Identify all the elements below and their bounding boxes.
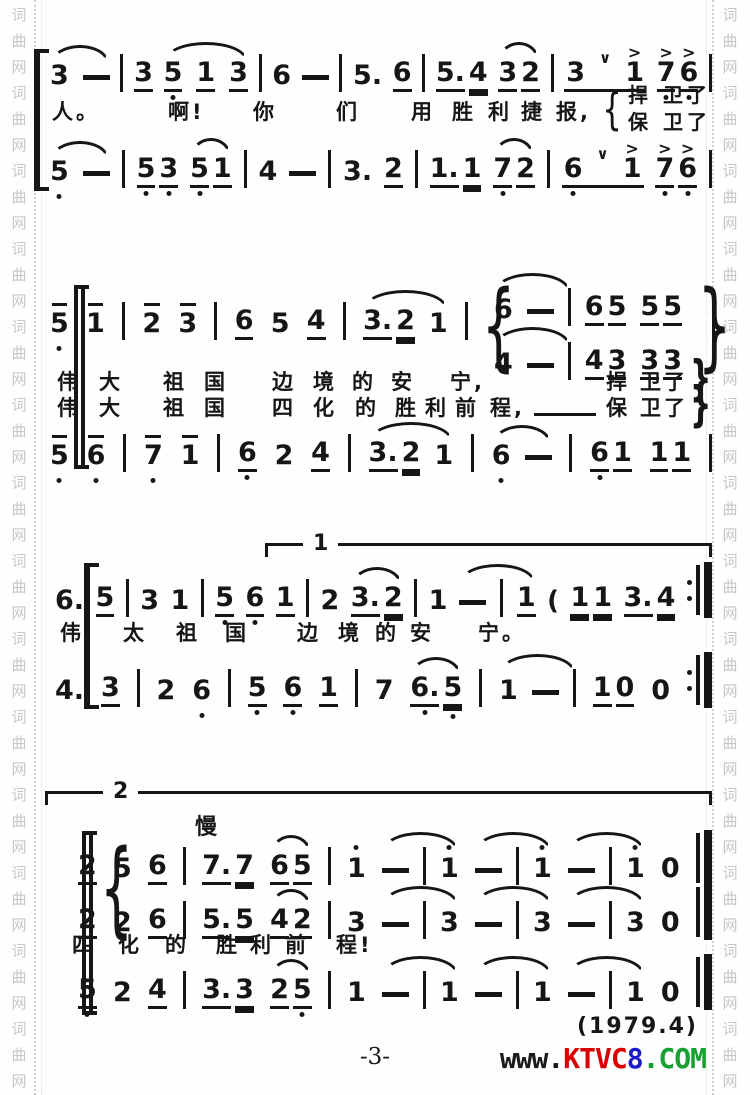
watermark-char: 网: [11, 366, 26, 392]
lyric-text: 程,: [490, 392, 525, 422]
notes-line-voice1: 6.53156123.211(113.4: [55, 571, 712, 617]
watermark-char: 曲: [722, 574, 737, 600]
watermark-char: 网: [722, 834, 737, 860]
watermark-char: 词: [11, 314, 26, 340]
barline: [126, 579, 129, 617]
lyric-text: 程!: [336, 929, 373, 959]
watermark-char: 曲: [11, 106, 26, 132]
watermark-char: 词: [11, 236, 26, 262]
notes-line-voice2: 5535143.21.1726∨1>7>6>: [50, 142, 712, 188]
beamed-group: 6∨1>: [562, 153, 644, 188]
note: 5: [96, 582, 115, 617]
lyric-text: 利: [488, 96, 512, 126]
note: 5: [78, 974, 97, 1009]
note: 2: [275, 440, 294, 472]
barline: [137, 669, 140, 707]
note: 6: [246, 582, 265, 617]
lyric-text: 的: [375, 617, 399, 647]
note: 1: [672, 437, 691, 472]
note: 6.: [410, 672, 439, 707]
watermark-char: 词: [11, 2, 26, 28]
watermark-char: 曲: [722, 106, 737, 132]
note: 3: [50, 60, 69, 92]
watermark-char: 网: [11, 522, 26, 548]
barline: [214, 302, 217, 340]
lyric-text: 的: [165, 929, 189, 959]
slur-group: 32: [498, 57, 540, 92]
note: 2: [270, 974, 289, 1009]
note: 2: [78, 850, 97, 885]
slur-group: 25: [270, 974, 312, 1009]
slur-group: 3.21: [363, 305, 448, 340]
low-octave-dot: [166, 191, 171, 196]
note: 3: [159, 153, 178, 188]
note: 4: [311, 437, 330, 472]
volta-bracket-1: 1: [265, 543, 712, 560]
note-group: 3.4: [624, 582, 676, 617]
note: 4: [259, 156, 278, 188]
watermark-char: 曲: [722, 730, 737, 756]
note: 2: [521, 57, 540, 92]
note: 1: [347, 977, 366, 1009]
low-octave-dot: [290, 710, 295, 715]
watermark-char: 词: [722, 1016, 737, 1042]
barline: [122, 302, 125, 340]
low-octave-dot: [245, 475, 250, 480]
note: 3: [134, 57, 153, 92]
notes-line-voice2: 56716243.2166111: [50, 426, 712, 472]
note: 1: [319, 672, 338, 707]
note: 5: [293, 974, 312, 1009]
watermark-char: 词: [11, 548, 26, 574]
lyric-text: 们: [336, 96, 360, 126]
barline: [568, 288, 571, 326]
barline: [355, 669, 358, 707]
note: 5: [113, 853, 132, 885]
watermark-char: 网: [11, 132, 26, 158]
note-group: 3.2: [363, 305, 415, 340]
lyric-text: 卫了: [640, 392, 688, 422]
dash-continuation: [475, 868, 502, 873]
note: 2: [516, 153, 535, 188]
note: 3: [229, 57, 248, 92]
watermark-char: 网: [722, 756, 737, 782]
composition-date: (1979.4): [577, 1014, 698, 1039]
note: 1: [593, 582, 612, 617]
low-octave-dot: [500, 191, 505, 196]
note: 6: [585, 291, 604, 326]
barline: [201, 579, 204, 617]
note: 5: [271, 308, 290, 340]
barline: [471, 434, 474, 472]
slur-group: 1: [499, 669, 576, 707]
stack-rows: 捍 卫了保 卫了: [628, 82, 711, 136]
note: 2: [396, 305, 415, 340]
site-www: www.: [500, 1042, 563, 1075]
watermark-char: 网: [722, 444, 737, 470]
barline: [343, 302, 346, 340]
watermark-left-column: 词曲网词曲网词曲网词曲网词曲网词曲网词曲网词曲网词曲网词曲网词曲网词曲网词曲网词…: [4, 0, 36, 1095]
lyric-text: 保 卫了: [628, 109, 711, 136]
note: 0: [661, 853, 680, 885]
note: 6: [564, 153, 583, 185]
lyric-text: 边: [297, 617, 321, 647]
note: 2: [402, 437, 421, 472]
barline: [415, 150, 418, 188]
watermark-char: 曲: [11, 28, 26, 54]
watermark-char: 词: [11, 860, 26, 886]
accent-mark: >: [682, 37, 695, 69]
lyric-text: 祖: [163, 392, 187, 422]
note: 1: [434, 440, 453, 472]
lyric-text: 你: [253, 96, 277, 126]
dash-continuation: [382, 922, 409, 927]
note-group: 3.3: [202, 974, 254, 1009]
watermark-char: 曲: [722, 652, 737, 678]
watermark-char: 曲: [722, 184, 737, 210]
lyric-text: 境: [338, 617, 362, 647]
lyric-text: 太: [123, 617, 147, 647]
barline: [569, 434, 572, 472]
note: 5: [663, 291, 682, 326]
watermark-char: 曲: [11, 964, 26, 990]
slur-group: 72: [493, 153, 535, 188]
note: 3: [498, 57, 517, 92]
barline: [328, 971, 331, 1009]
note: 1: [86, 308, 105, 340]
note: 6: [238, 437, 257, 472]
slur-group: 65: [270, 850, 312, 885]
watermark-char: 曲: [11, 184, 26, 210]
barline: [244, 150, 247, 188]
barline: [259, 54, 262, 92]
watermark-char: 词: [722, 470, 737, 496]
note: 6: [492, 440, 511, 472]
low-octave-dot: [597, 475, 602, 480]
note: 1: [440, 977, 459, 1009]
note: 1.: [430, 153, 459, 188]
note: 1: [276, 582, 295, 617]
note: 6: [148, 850, 167, 885]
note-group: 11: [650, 437, 692, 472]
repeat-dots: [687, 580, 692, 601]
repeat-end-barline: [687, 563, 712, 617]
watermark-right-column: 词曲网词曲网词曲网词曲网词曲网词曲网词曲网词曲网词曲网词曲网词曲网词曲网词曲网词…: [712, 0, 746, 1095]
lyrics-line: 人。啊!你们用胜利捷报,{捍 卫了保 卫了: [40, 96, 712, 124]
dash-continuation: [525, 455, 552, 460]
watermark-char: 曲: [722, 808, 737, 834]
watermark-char: 网: [11, 210, 26, 236]
note: 0: [651, 675, 670, 707]
barline: [414, 579, 417, 617]
note: 3.: [343, 156, 372, 188]
lyric-text: 国: [225, 617, 249, 647]
watermark-char: 词: [722, 704, 737, 730]
lyric-text: 四: [272, 392, 296, 422]
lyric-text: 伟: [60, 617, 84, 647]
watermark-char: 词: [722, 158, 737, 184]
accent-mark: >: [628, 37, 641, 69]
note: 5.: [353, 60, 382, 92]
lyric-stack: {捍 卫了保 卫了: [598, 82, 711, 136]
note-group: 65: [585, 291, 627, 326]
barline: [423, 847, 426, 885]
watermark-char: 网: [722, 210, 737, 236]
accent-mark: >: [681, 133, 694, 165]
low-octave-dot: [300, 1012, 305, 1017]
note: 6: [393, 57, 412, 92]
slur-group: 3.2: [351, 582, 403, 617]
lyric-text: 胜: [395, 392, 419, 422]
accent-mark: >: [625, 133, 638, 165]
low-octave-dot: [93, 478, 98, 483]
watermark-char: 网: [11, 990, 26, 1016]
note: 1: [570, 582, 589, 617]
note: 1: [533, 853, 552, 885]
barline: [123, 434, 126, 472]
note: 6: [494, 294, 513, 326]
note-group: 1.1: [430, 153, 482, 188]
barline: [709, 150, 712, 188]
lyric-text: 前: [285, 929, 309, 959]
note-group: 7>6>: [655, 153, 697, 188]
lyrics-line-verse1: 伟大祖国边境的安宁,捍卫了}: [40, 366, 712, 394]
watermark-char: 词: [722, 392, 737, 418]
dash-continuation: [532, 690, 559, 695]
note-group: 10: [593, 672, 635, 707]
note: 5: [50, 156, 69, 188]
note: 4: [148, 974, 167, 1009]
low-octave-dot: [57, 478, 62, 483]
barline: [573, 669, 576, 707]
note: 1: [181, 440, 200, 472]
note: 2: [113, 977, 132, 1009]
watermark-char: 网: [722, 600, 737, 626]
lyric-text: 胜: [216, 929, 240, 959]
note: 5: [293, 850, 312, 885]
watermark-char: 网: [11, 444, 26, 470]
note: 7: [375, 675, 394, 707]
note: 1: [593, 672, 612, 707]
watermark-char: 词: [722, 860, 737, 886]
note: 3: [140, 585, 159, 617]
note: 1: [429, 308, 448, 340]
slur-group: 1: [382, 847, 459, 885]
watermark-char: 曲: [11, 574, 26, 600]
lyrics-line: 伟太祖国边境的安宁。: [40, 617, 712, 645]
barline: [217, 434, 220, 472]
low-octave-dot: [685, 191, 690, 196]
note: 1: [517, 582, 536, 617]
note: 6: [192, 675, 211, 707]
watermark-char: 网: [722, 1068, 737, 1094]
watermark-char: 词: [11, 158, 26, 184]
barline: [328, 150, 331, 188]
barline: [183, 971, 186, 1009]
watermark-char: 网: [722, 990, 737, 1016]
note: 5: [215, 582, 234, 617]
lyric-text: 化: [313, 392, 337, 422]
barline: [328, 847, 331, 885]
watermark-char: 网: [11, 288, 26, 314]
barline: [228, 669, 231, 707]
final-barline: [696, 955, 712, 1009]
watermark-char: 曲: [11, 418, 26, 444]
lyric-text: 胜: [452, 96, 476, 126]
note: 4: [657, 582, 676, 617]
high-octave-dot: [354, 845, 359, 850]
slur-group: 1: [382, 971, 459, 1009]
lyric-text: 化: [118, 929, 142, 959]
dash-continuation: [568, 992, 595, 997]
watermark-char: 网: [722, 678, 737, 704]
watermark-char: 网: [722, 912, 737, 938]
slur-group: 6: [494, 288, 571, 326]
watermark-char: 词: [11, 626, 26, 652]
accent-mark: >: [658, 133, 671, 165]
lyric-text: 国: [204, 392, 228, 422]
low-octave-dot: [499, 478, 504, 483]
dash-continuation: [527, 309, 554, 314]
barline: [516, 847, 519, 885]
high-octave-dot: [540, 845, 545, 850]
notes-line-voice1: 2567.76511110: [78, 839, 712, 885]
note: 1: [650, 437, 669, 472]
note: 5: [248, 672, 267, 707]
note: 5.: [436, 57, 465, 92]
lyric-text: 伟: [57, 392, 81, 422]
barline: [422, 54, 425, 92]
low-octave-dot: [197, 191, 202, 196]
note: 7: [493, 153, 512, 188]
high-octave-dot: [633, 845, 638, 850]
slur-group: 3.21: [369, 437, 454, 472]
barline: [609, 971, 612, 1009]
note: 3.: [624, 582, 653, 617]
note: 3: [235, 974, 254, 1009]
note: 4: [307, 305, 326, 340]
note-group: 3.2: [369, 437, 421, 472]
barline: [709, 434, 712, 472]
watermark-char: 词: [11, 392, 26, 418]
slur-group: 51: [190, 153, 232, 188]
low-octave-dot: [662, 191, 667, 196]
site-eight: 8: [627, 1042, 643, 1075]
tempo-marking: 慢: [195, 809, 217, 841]
note-group: 53: [137, 153, 179, 188]
low-octave-dot: [450, 714, 455, 719]
lyric-extension-rule: [534, 413, 596, 416]
watermark-char: 词: [722, 626, 737, 652]
site-com: .COM: [643, 1042, 706, 1075]
note: 1: [347, 853, 366, 885]
note: 1: [213, 153, 232, 188]
barline: [516, 971, 519, 1009]
note: 0: [616, 672, 635, 707]
barline: [306, 579, 309, 617]
dash-continuation: [289, 171, 316, 176]
lyric-text: 利: [425, 392, 449, 422]
barline: [183, 847, 186, 885]
note: 2: [384, 153, 403, 188]
slur-group: 5: [50, 156, 110, 188]
barline: [423, 971, 426, 1009]
barline: [609, 847, 612, 885]
lyric-text: 宁。: [478, 617, 526, 647]
watermark-char: 网: [11, 756, 26, 782]
barline: [551, 54, 554, 92]
watermark-char: 网: [722, 522, 737, 548]
note: 1>: [623, 153, 642, 185]
note: 6: [590, 437, 609, 472]
watermark-char: 曲: [11, 808, 26, 834]
dash-continuation: [83, 75, 110, 80]
dash-continuation: [459, 600, 486, 605]
lyric-text: 用: [411, 96, 435, 126]
dash-continuation: [302, 75, 329, 80]
note-group: 11: [570, 582, 612, 617]
watermark-char: 网: [11, 54, 26, 80]
barline: [547, 150, 550, 188]
note: 5: [137, 153, 156, 188]
volta-label: 1: [303, 532, 338, 556]
note: 3.: [363, 305, 392, 340]
lyric-text: 报,: [556, 96, 591, 126]
note: 2: [384, 582, 403, 617]
watermark-char: 网: [11, 834, 26, 860]
note: 6.: [55, 585, 84, 617]
watermark-char: 网: [722, 54, 737, 80]
watermark-char: 网: [722, 132, 737, 158]
note: 1: [533, 977, 552, 1009]
low-octave-dot: [144, 191, 149, 196]
lyrics-line-verse2: 伟大祖国四化的胜利前程,保卫了}: [40, 392, 712, 420]
note: 1: [440, 853, 459, 885]
note: 5: [443, 672, 462, 707]
dash-continuation: [568, 868, 595, 873]
note: 6: [87, 440, 106, 472]
lyric-text: 人。: [52, 96, 100, 126]
lyric-text: 保: [606, 392, 630, 422]
dash-continuation: [475, 992, 502, 997]
watermark-char: 词: [722, 548, 737, 574]
note: 1: [196, 57, 215, 92]
dash-continuation: [475, 922, 502, 927]
slur-group: 6.5: [410, 672, 462, 707]
slur-group: 1: [459, 579, 536, 617]
watermark-char: 词: [722, 236, 737, 262]
lyric-text: 祖: [176, 617, 200, 647]
watermark-char: 词: [722, 938, 737, 964]
notes-line-voice2: 4.32656176.51100: [55, 661, 712, 707]
stack-brace: {: [602, 84, 622, 135]
watermark-char: 网: [11, 1068, 26, 1094]
note: 6: [272, 60, 291, 92]
note: 4.: [55, 675, 84, 707]
lyric-text: 四: [72, 929, 96, 959]
note-group: 61: [590, 437, 632, 472]
note: 2: [157, 675, 176, 707]
watermark-char: 曲: [722, 496, 737, 522]
note: 6: [235, 305, 254, 340]
note: 1: [429, 585, 448, 617]
watermark-char: 曲: [722, 28, 737, 54]
repeat-end-barline: [687, 653, 712, 707]
lyric-text: 大: [99, 392, 123, 422]
barline: [122, 150, 125, 188]
slur-group: 6: [492, 440, 552, 472]
note: 3: [178, 308, 197, 340]
